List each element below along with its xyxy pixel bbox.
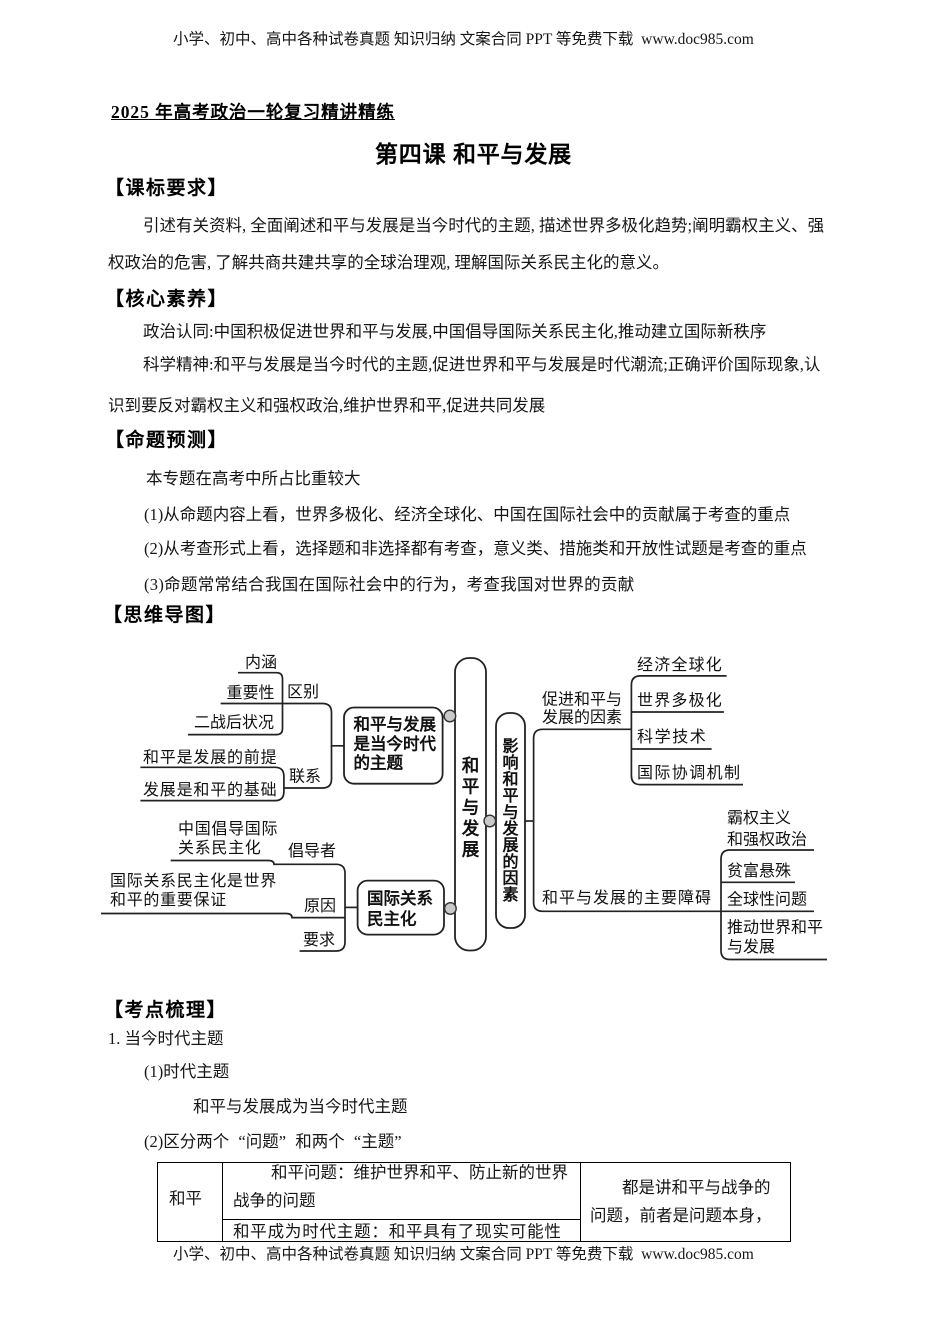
svg-text:国际关系民主化是世界: 国际关系民主化是世界 <box>110 872 277 890</box>
svg-text:的主题: 的主题 <box>354 753 404 773</box>
svg-text:要求: 要求 <box>303 931 335 949</box>
svg-text:倡导者: 倡导者 <box>288 842 336 860</box>
svg-text:与: 与 <box>502 804 518 822</box>
svg-text:国际协调机制: 国际协调机制 <box>637 764 741 782</box>
svg-text:科学技术: 科学技术 <box>637 728 707 746</box>
svg-text:素: 素 <box>502 885 518 904</box>
svg-text:重要性: 重要性 <box>227 684 275 702</box>
svg-text:经济全球化: 经济全球化 <box>637 656 723 674</box>
svg-text:和平是发展的前提: 和平是发展的前提 <box>143 749 277 767</box>
svg-text:二战后状况: 二战后状况 <box>194 714 274 732</box>
svg-text:和平的重要保证: 和平的重要保证 <box>110 891 227 909</box>
svg-text:促进和平与: 促进和平与 <box>542 691 622 709</box>
svg-text:和平与发展的主要障碍: 和平与发展的主要障碍 <box>542 889 712 907</box>
svg-text:国际关系: 国际关系 <box>367 888 433 908</box>
svg-text:霸权主义: 霸权主义 <box>727 809 791 827</box>
svg-text:影: 影 <box>502 737 518 756</box>
svg-text:区别: 区别 <box>287 683 319 701</box>
svg-text:的: 的 <box>502 852 518 871</box>
svg-text:和平与发展: 和平与发展 <box>354 714 437 734</box>
svg-text:发: 发 <box>501 819 519 838</box>
svg-text:和: 和 <box>502 770 518 789</box>
svg-text:中国倡导国际: 中国倡导国际 <box>178 820 278 838</box>
svg-text:平: 平 <box>502 787 518 805</box>
svg-text:发: 发 <box>461 819 480 839</box>
svg-text:和强权政治: 和强权政治 <box>727 831 807 849</box>
svg-text:联系: 联系 <box>289 768 321 786</box>
svg-text:原因: 原因 <box>304 897 336 915</box>
svg-text:发展是和平的基础: 发展是和平的基础 <box>143 781 277 799</box>
svg-text:和: 和 <box>462 756 480 776</box>
svg-text:与: 与 <box>462 798 480 818</box>
svg-text:关系民主化: 关系民主化 <box>178 839 262 857</box>
svg-text:展: 展 <box>502 837 519 855</box>
svg-text:与发展: 与发展 <box>727 938 775 956</box>
svg-text:发展的因素: 发展的因素 <box>542 709 622 727</box>
svg-text:内涵: 内涵 <box>245 654 277 672</box>
svg-text:贫富悬殊: 贫富悬殊 <box>727 862 791 880</box>
svg-text:展: 展 <box>462 840 480 860</box>
svg-text:平: 平 <box>462 777 480 797</box>
svg-text:因: 因 <box>502 870 518 888</box>
svg-text:推动世界和平: 推动世界和平 <box>727 919 823 937</box>
svg-text:响: 响 <box>502 753 518 772</box>
svg-text:民主化: 民主化 <box>367 909 417 929</box>
svg-text:世界多极化: 世界多极化 <box>637 692 723 710</box>
svg-text:是当今时代: 是当今时代 <box>353 734 437 754</box>
svg-text:全球性问题: 全球性问题 <box>727 891 807 909</box>
